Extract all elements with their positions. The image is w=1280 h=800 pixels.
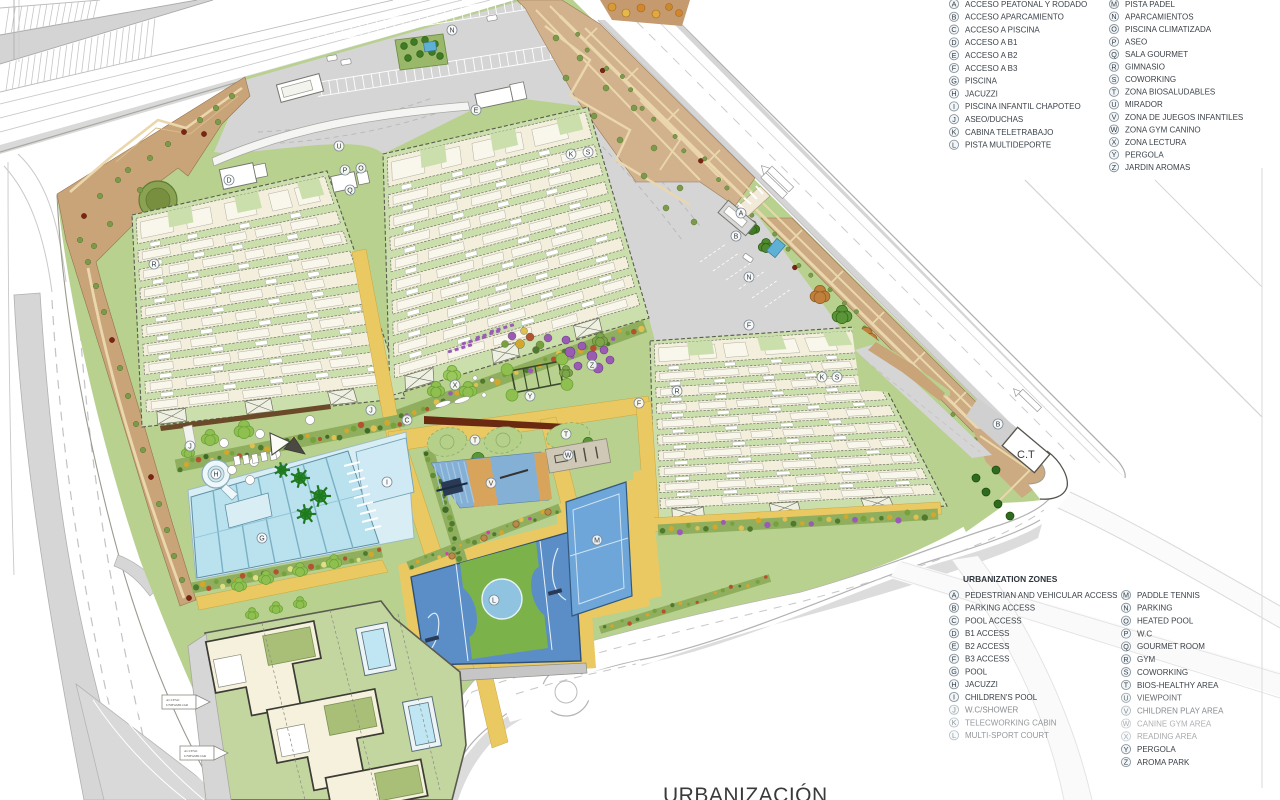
svg-text:G: G — [259, 536, 264, 543]
svg-text:S: S — [835, 375, 840, 382]
svg-text:M: M — [1123, 591, 1129, 600]
svg-text:UNIFAMILIAR: UNIFAMILIAR — [166, 703, 189, 707]
svg-text:U: U — [1111, 100, 1116, 109]
svg-text:PERGOLA: PERGOLA — [1125, 150, 1164, 159]
svg-text:I: I — [953, 693, 955, 702]
svg-text:URBANIZACIÓN: URBANIZACIÓN — [663, 784, 828, 800]
svg-text:X: X — [1112, 138, 1117, 147]
svg-text:R: R — [151, 262, 156, 269]
svg-text:GYM: GYM — [1137, 655, 1156, 664]
svg-text:ACCESO: ACCESO — [184, 749, 198, 753]
svg-text:E: E — [952, 642, 957, 651]
svg-text:URBANIZATION ZONES: URBANIZATION ZONES — [963, 574, 1058, 584]
svg-text:BIOS-HEALTHY AREA: BIOS-HEALTHY AREA — [1137, 681, 1219, 690]
svg-text:Y: Y — [1112, 150, 1117, 159]
svg-text:ACCESO A B1: ACCESO A B1 — [965, 38, 1018, 47]
svg-text:R: R — [1123, 655, 1128, 664]
svg-text:CABINA TELETRABAJO: CABINA TELETRABAJO — [965, 128, 1053, 137]
svg-text:PADDLE TENNIS: PADDLE TENNIS — [1137, 591, 1200, 600]
svg-text:B: B — [734, 234, 739, 241]
svg-text:K: K — [952, 128, 957, 137]
svg-text:O: O — [1111, 25, 1117, 34]
svg-text:B3 ACCESS: B3 ACCESS — [965, 655, 1009, 664]
svg-text:J: J — [369, 408, 373, 415]
svg-text:C.T: C.T — [1017, 449, 1035, 461]
svg-text:F: F — [952, 654, 957, 663]
svg-text:ACCESO APARCAMIENTO: ACCESO APARCAMIENTO — [965, 13, 1064, 22]
svg-text:V: V — [1124, 706, 1129, 715]
svg-text:POOL: POOL — [965, 667, 988, 676]
svg-text:T: T — [473, 438, 478, 445]
svg-text:PISTA PADEL: PISTA PADEL — [1125, 0, 1175, 9]
svg-text:CHILDREN'S POOL: CHILDREN'S POOL — [965, 693, 1038, 702]
svg-text:W.C/SHOWER: W.C/SHOWER — [965, 706, 1019, 715]
svg-text:N: N — [746, 275, 751, 282]
svg-text:ACCESO A B3: ACCESO A B3 — [965, 64, 1018, 73]
svg-text:W: W — [1111, 125, 1118, 134]
svg-text:MIRADOR: MIRADOR — [1125, 100, 1163, 109]
svg-text:ACCESO A PISCINA: ACCESO A PISCINA — [965, 25, 1040, 34]
svg-text:ZONA GYM CANINO: ZONA GYM CANINO — [1125, 125, 1201, 134]
svg-text:Y: Y — [528, 394, 533, 401]
svg-text:V: V — [1112, 113, 1117, 122]
svg-text:A: A — [739, 211, 744, 218]
svg-text:PISCINA CLIMATIZADA: PISCINA CLIMATIZADA — [1125, 25, 1212, 34]
svg-text:M: M — [1111, 0, 1117, 9]
svg-text:A: A — [952, 591, 957, 600]
svg-text:CANINE GYM AREA: CANINE GYM AREA — [1137, 719, 1212, 728]
svg-text:V: V — [489, 481, 494, 488]
svg-text:JACUZZI: JACUZZI — [965, 680, 998, 689]
svg-text:PISTA MULTIDEPORTE: PISTA MULTIDEPORTE — [965, 141, 1051, 150]
svg-text:B2 ACCESS: B2 ACCESS — [965, 642, 1009, 651]
svg-text:L: L — [952, 731, 956, 740]
svg-text:H: H — [951, 680, 956, 689]
svg-text:U: U — [1123, 693, 1128, 702]
svg-text:COWORKING: COWORKING — [1137, 668, 1188, 677]
svg-text:K: K — [569, 152, 574, 159]
svg-text:D: D — [951, 629, 956, 638]
svg-text:ZONA DE JUEGOS INFANTILES: ZONA DE JUEGOS INFANTILES — [1125, 113, 1243, 122]
svg-text:ACCESO: ACCESO — [166, 698, 180, 702]
svg-text:CHILDREN PLAY AREA: CHILDREN PLAY AREA — [1137, 706, 1224, 715]
svg-text:Z: Z — [1112, 163, 1117, 172]
svg-text:Z: Z — [1124, 758, 1129, 767]
svg-text:H: H — [213, 472, 218, 479]
svg-text:Z: Z — [590, 363, 595, 370]
svg-text:JACUZZI: JACUZZI — [965, 89, 998, 98]
svg-text:APARCAMIENTOS: APARCAMIENTOS — [1125, 12, 1194, 21]
svg-text:F: F — [747, 323, 751, 330]
svg-text:SALA GOURMET: SALA GOURMET — [1125, 50, 1188, 59]
svg-text:R: R — [1111, 62, 1116, 71]
svg-text:B: B — [996, 422, 1001, 429]
svg-text:E: E — [952, 51, 957, 60]
svg-text:F: F — [637, 401, 641, 408]
svg-text:Q: Q — [347, 188, 353, 195]
svg-text:PARKING: PARKING — [1137, 604, 1172, 613]
svg-text:J: J — [188, 444, 192, 451]
svg-text:K: K — [952, 718, 957, 727]
svg-text:G: G — [951, 667, 957, 676]
svg-text:Q: Q — [1111, 50, 1117, 59]
svg-text:D: D — [226, 178, 231, 185]
svg-text:P: P — [1124, 629, 1129, 638]
svg-text:N: N — [1111, 12, 1116, 21]
svg-text:COWORKING: COWORKING — [1125, 75, 1176, 84]
svg-text:ASEO/DUCHAS: ASEO/DUCHAS — [965, 115, 1023, 124]
svg-text:PISCINA: PISCINA — [965, 77, 998, 86]
svg-text:ACCESO A B2: ACCESO A B2 — [965, 51, 1018, 60]
svg-text:I: I — [953, 102, 955, 111]
svg-text:W: W — [565, 453, 572, 460]
svg-text:W.C: W.C — [1137, 629, 1152, 638]
svg-text:MULTI-SPORT COURT: MULTI-SPORT COURT — [965, 731, 1049, 740]
svg-text:W: W — [1123, 719, 1130, 728]
svg-text:POOL ACCESS: POOL ACCESS — [965, 616, 1022, 625]
svg-text:P: P — [343, 168, 348, 175]
svg-text:X: X — [453, 383, 458, 390]
svg-text:UNIFAMILIAR: UNIFAMILIAR — [184, 754, 207, 758]
svg-text:G: G — [951, 76, 957, 85]
svg-text:A: A — [952, 0, 957, 9]
svg-text:I: I — [386, 480, 388, 487]
svg-text:JARDIN AROMAS: JARDIN AROMAS — [1125, 163, 1190, 172]
svg-text:N: N — [449, 28, 454, 35]
svg-text:Q: Q — [1123, 642, 1129, 651]
svg-text:PARKING ACCESS: PARKING ACCESS — [965, 604, 1035, 613]
svg-text:PEDESTRIAN AND VEHICULAR ACCES: PEDESTRIAN AND VEHICULAR ACCESS — [965, 591, 1117, 600]
svg-text:HEATED POOL: HEATED POOL — [1137, 617, 1194, 626]
svg-text:GIMNASIO: GIMNASIO — [1125, 63, 1165, 72]
svg-text:E: E — [474, 108, 479, 115]
svg-text:C: C — [404, 418, 409, 425]
svg-text:ASEO: ASEO — [1125, 37, 1147, 46]
svg-text:B: B — [952, 603, 957, 612]
svg-text:ZONA BIOSALUDABLES: ZONA BIOSALUDABLES — [1125, 88, 1215, 97]
svg-text:TELECWORKING CABIN: TELECWORKING CABIN — [965, 718, 1057, 727]
svg-text:P: P — [1112, 37, 1117, 46]
svg-text:T: T — [1124, 681, 1129, 690]
svg-text:B1 ACCESS: B1 ACCESS — [965, 629, 1009, 638]
svg-text:X: X — [1124, 732, 1129, 741]
svg-text:VIEWPOINT: VIEWPOINT — [1137, 694, 1182, 703]
svg-text:PERGOLA: PERGOLA — [1137, 745, 1176, 754]
svg-text:R: R — [674, 389, 679, 396]
svg-text:K: K — [820, 375, 825, 382]
svg-text:C: C — [951, 616, 956, 625]
svg-text:O: O — [358, 166, 364, 173]
svg-text:U: U — [336, 144, 341, 151]
svg-text:J: J — [952, 705, 956, 714]
svg-text:L: L — [952, 140, 956, 149]
svg-text:J: J — [952, 115, 956, 124]
svg-text:Y: Y — [1124, 745, 1129, 754]
svg-text:T: T — [1112, 87, 1117, 96]
svg-text:ACCESO PEATONAL Y RODADO: ACCESO PEATONAL Y RODADO — [965, 0, 1087, 9]
svg-text:M: M — [594, 538, 600, 545]
svg-text:O: O — [1123, 616, 1129, 625]
svg-text:GOURMET ROOM: GOURMET ROOM — [1137, 642, 1205, 651]
svg-text:D: D — [951, 38, 956, 47]
svg-text:PISCINA INFANTIL CHAPOTEO: PISCINA INFANTIL CHAPOTEO — [965, 102, 1081, 111]
svg-text:B: B — [952, 12, 957, 21]
svg-text:C: C — [951, 25, 956, 34]
svg-text:S: S — [586, 150, 591, 157]
svg-text:AROMA PARK: AROMA PARK — [1137, 758, 1190, 767]
svg-text:L: L — [492, 598, 496, 605]
svg-text:N: N — [1123, 603, 1128, 612]
svg-text:S: S — [1124, 668, 1129, 677]
svg-text:H: H — [951, 89, 956, 98]
svg-text:S: S — [1112, 75, 1117, 84]
svg-text:READING AREA: READING AREA — [1137, 732, 1198, 741]
svg-text:F: F — [952, 64, 957, 73]
svg-text:ZONA LECTURA: ZONA LECTURA — [1125, 138, 1187, 147]
svg-text:T: T — [564, 432, 569, 439]
